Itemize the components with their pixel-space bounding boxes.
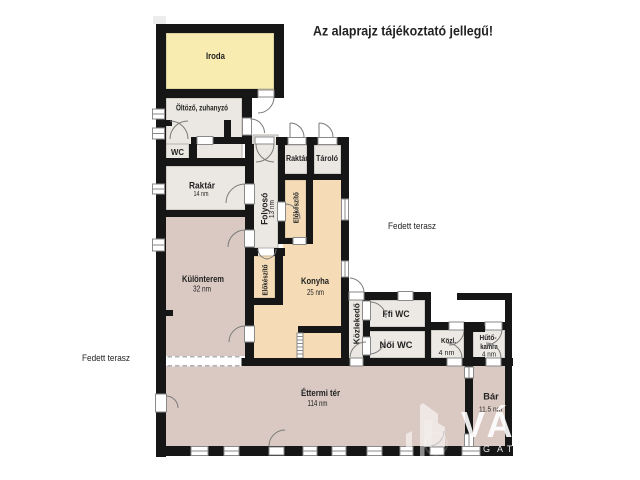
svg-text:Fedett terasz: Fedett terasz <box>82 353 130 364</box>
svg-text:Különterem: Különterem <box>182 274 224 284</box>
svg-text:Előkészítő: Előkészítő <box>263 265 270 296</box>
svg-text:4 nm: 4 nm <box>439 348 455 357</box>
svg-text:14 nm: 14 nm <box>194 189 209 198</box>
svg-text:13 nm: 13 nm <box>267 200 276 218</box>
svg-text:Iroda: Iroda <box>206 51 226 61</box>
svg-text:114 nm: 114 nm <box>308 399 328 408</box>
svg-text:Az alaprajz tájékoztató jelleg: Az alaprajz tájékoztató jellegű! <box>313 23 493 39</box>
svg-text:Fedett terasz: Fedett terasz <box>388 221 436 232</box>
svg-text:G: G <box>483 444 490 454</box>
svg-text:32 nm: 32 nm <box>193 285 211 294</box>
svg-text:WC: WC <box>171 147 184 157</box>
svg-text:T: T <box>507 444 513 454</box>
svg-text:25 nm: 25 nm <box>307 288 324 297</box>
svg-text:Közl.: Közl. <box>441 336 456 345</box>
svg-text:Hűtő-: Hűtő- <box>480 333 497 342</box>
svg-text:Ffi WC: Ffi WC <box>383 309 410 320</box>
svg-text:Éttermi tér: Éttermi tér <box>301 388 340 399</box>
svg-text:Öltöző, zuhanyzó: Öltöző, zuhanyzó <box>176 104 228 113</box>
svg-text:VÁ: VÁ <box>461 404 514 445</box>
svg-text:Konyha: Konyha <box>301 276 330 287</box>
svg-text:Raktár: Raktár <box>286 154 308 163</box>
svg-text:Közlekedő: Közlekedő <box>353 303 362 344</box>
svg-text:Tároló: Tároló <box>316 154 338 163</box>
svg-text:Bár: Bár <box>483 392 499 402</box>
svg-text:A: A <box>497 444 503 454</box>
